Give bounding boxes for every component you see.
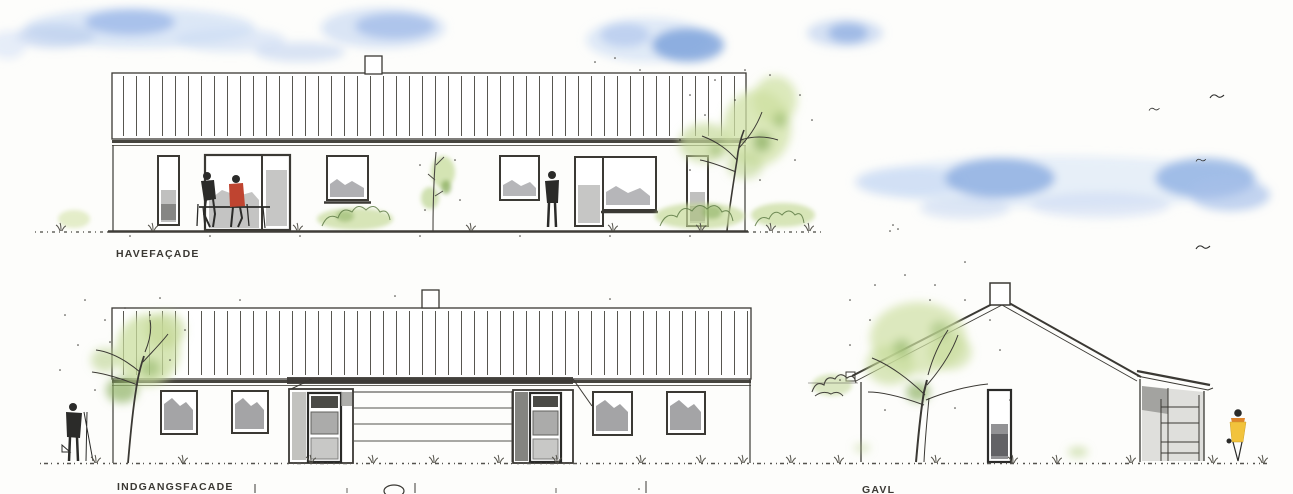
window-3 [593,392,632,435]
bag [1227,439,1232,444]
window-2 [232,391,268,433]
window-1 [161,391,197,434]
window-square-2 [500,156,539,200]
entrance-canopy [287,377,573,384]
chimney [990,283,1010,305]
roof [112,56,746,146]
label-havefacade: HAVEFAÇADE [116,248,200,260]
cutoff-marks [255,481,646,494]
dark-panel [515,392,528,461]
roof-seams [115,311,748,375]
chimney [365,56,382,74]
corner-pane [341,392,352,406]
sapling [419,152,461,231]
elevation-havefacade: HAVEFAÇADE [35,56,822,260]
entrance-door-unit [289,379,353,463]
roof [112,290,751,386]
sidelight [292,392,306,460]
label-gavl: GAVL [862,484,895,494]
transom [533,396,558,407]
transom [311,396,338,408]
person-yellow [1227,409,1247,461]
elevation-gavl: GAVL [808,261,1246,494]
roof-seams [115,76,743,136]
window-4 [667,392,705,434]
shed-carport [1137,371,1213,461]
window-tall-left [158,156,179,225]
side-door-unit [513,379,592,463]
jacket [1230,422,1246,442]
elevation-drawing: HAVEFAÇADE [0,0,1293,494]
garage-door [353,391,512,462]
person-standing [545,171,559,227]
easel [84,412,93,461]
ground-line-lower [40,455,1268,464]
label-indgangsfacade: INDGANGSFACADE [117,481,234,493]
tree-front [839,261,1088,462]
person-with-easel [62,403,93,461]
door-window-unit-right [575,157,658,226]
window-square-1 [324,156,371,203]
elevation-sheet: HAVEFAÇADE [0,0,1293,494]
window-tall-center [988,390,1011,462]
chimney [422,290,439,308]
sliding-door [205,155,290,230]
